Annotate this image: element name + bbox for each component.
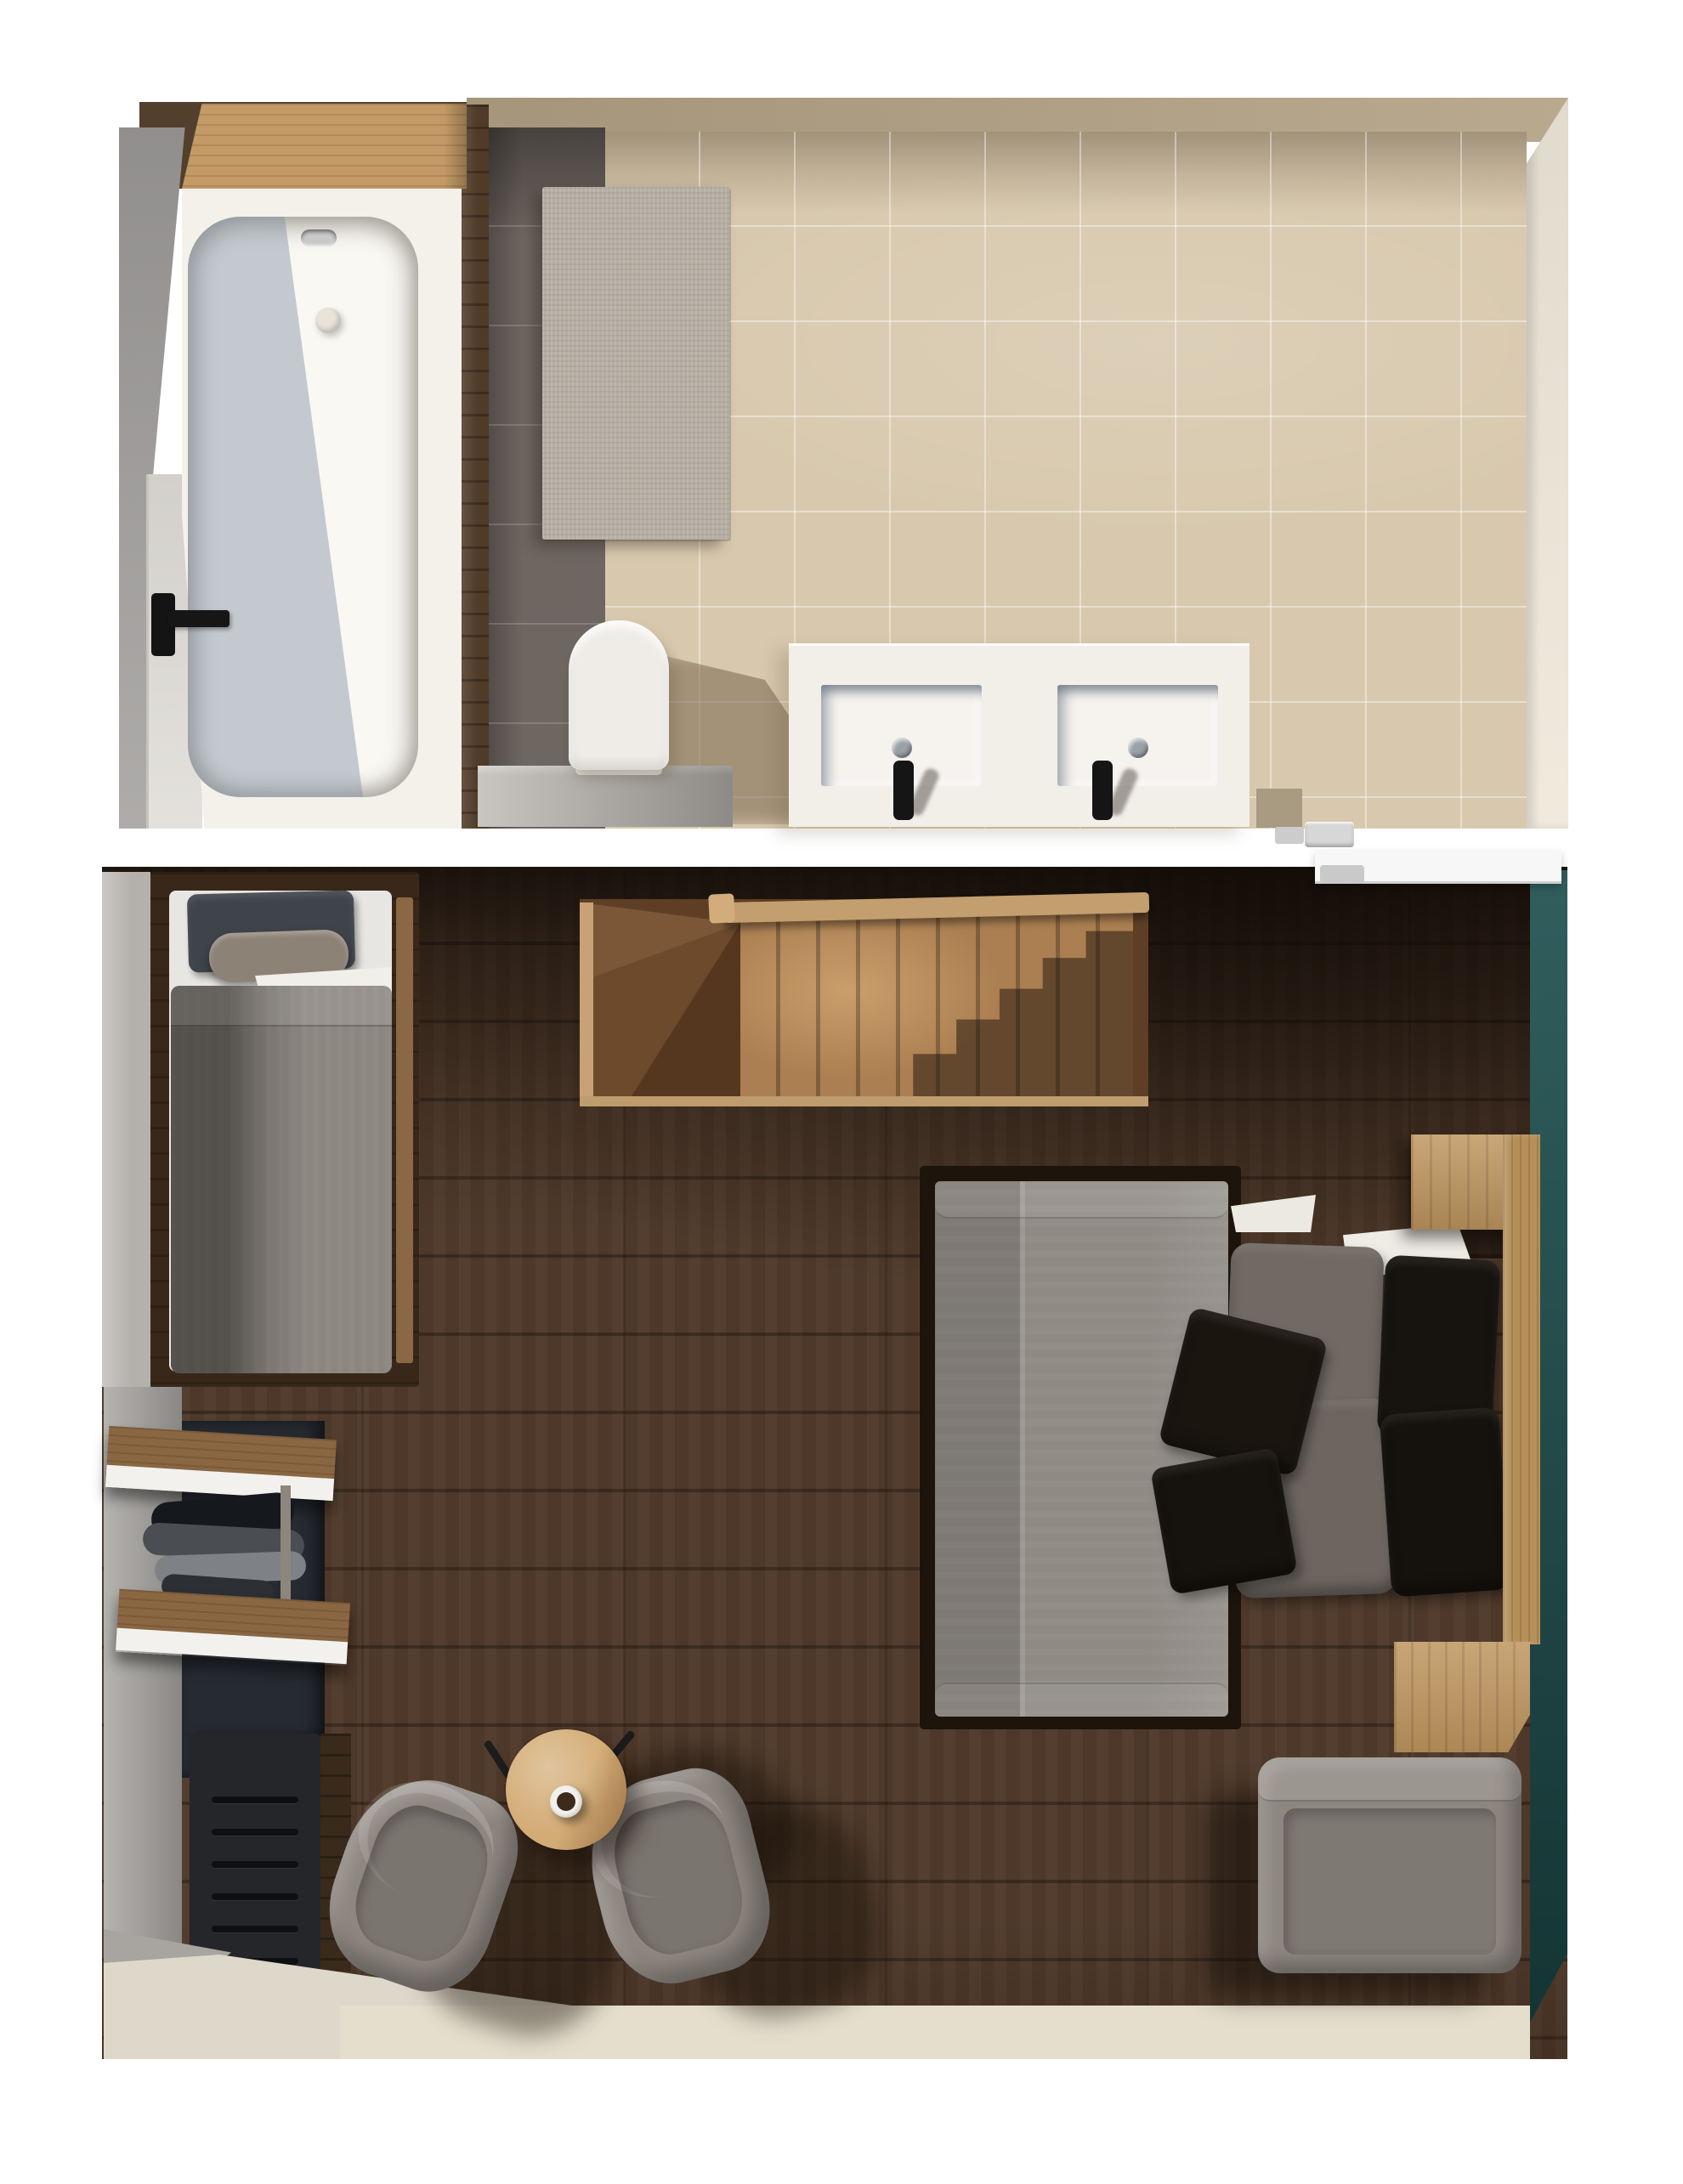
faucet-right [1092, 761, 1113, 820]
toilet [569, 620, 669, 770]
radiator-groove [212, 1926, 298, 1932]
stairs-frame-bottom [580, 1096, 1148, 1106]
double-vanity [789, 643, 1249, 827]
single-bed-duvet-fold [171, 986, 392, 1027]
radiator-groove [212, 1893, 298, 1900]
door-hinge-chrome [1305, 822, 1354, 847]
bedroom-door-handle [1320, 865, 1364, 884]
black-throw-pillow-bottom [1150, 1447, 1298, 1595]
bathtub [188, 217, 418, 797]
tub-wood-trim [462, 105, 489, 829]
headboard-wood-panel [1503, 1134, 1540, 1644]
coffee-table [506, 1729, 626, 1850]
tub-drain [315, 308, 341, 333]
bath-mat [542, 187, 729, 540]
ottoman-seat [1283, 1808, 1496, 1955]
radiator-groove [212, 1829, 298, 1836]
basin-right [1057, 685, 1218, 786]
duvet-roll-top [935, 1181, 1228, 1219]
hanging-clothes [141, 1497, 325, 1599]
door-hinge-chrome-small [1275, 827, 1304, 844]
floor-plan-render [0, 0, 1683, 2184]
basin-drain-right [1128, 738, 1148, 758]
stairs-handrail-post [708, 893, 735, 924]
faucet-left [893, 761, 914, 820]
bathtub-shadow [188, 217, 418, 797]
coffee-cup [550, 1785, 582, 1818]
dresser [1394, 1642, 1530, 1752]
single-bed-duvet [171, 986, 392, 1373]
bathroom-corner-tile-patch [1256, 789, 1302, 828]
single-bed-side-rail [396, 897, 413, 1363]
bedroom-left-wall [102, 872, 150, 1387]
radiator-groove [212, 1796, 298, 1803]
clothes-rail [280, 1485, 291, 1611]
bathroom-right-wall [1527, 98, 1568, 829]
stairs-winder-steps [593, 904, 740, 1096]
black-pillow-bottom [1380, 1406, 1511, 1597]
radiator-groove [212, 1861, 298, 1868]
staircase [580, 899, 1148, 1106]
basin-drain-left [892, 738, 912, 758]
radiator-panel [190, 1734, 320, 1974]
stairs-frame-left [580, 902, 593, 1103]
tub-overflow-chrome [301, 229, 337, 246]
door-handle-lever [168, 610, 229, 627]
duvet-roll-bottom [935, 1683, 1228, 1717]
ottoman [1258, 1757, 1521, 1973]
ottoman-back-roll [1258, 1757, 1521, 1802]
tub-wood-shelf [182, 104, 467, 189]
coffee [557, 1792, 575, 1811]
